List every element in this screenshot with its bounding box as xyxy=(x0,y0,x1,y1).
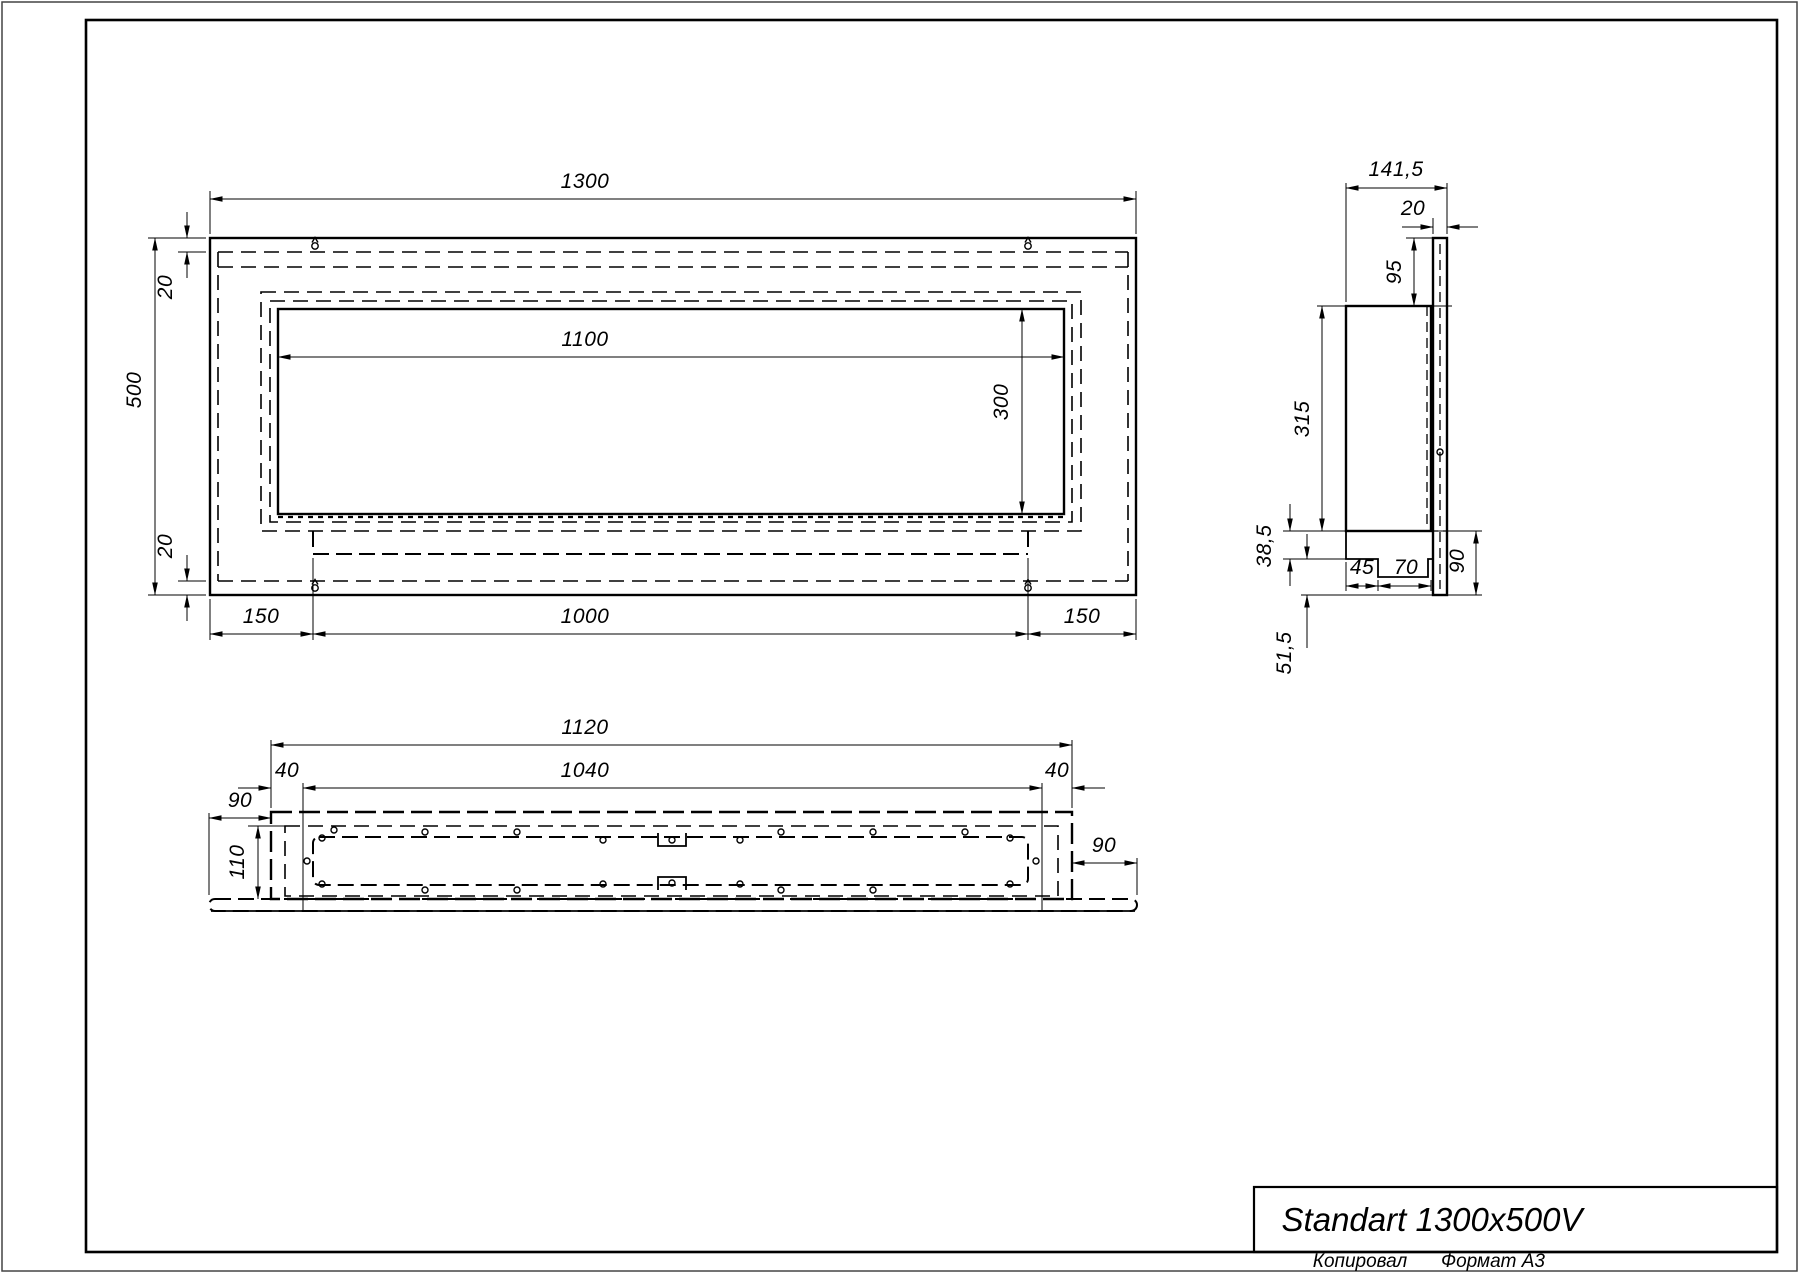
dim-front-opening-height: 300 xyxy=(990,384,1013,421)
dim-side-step-b: 70 xyxy=(1394,556,1418,579)
drawing-frame xyxy=(86,20,1777,1252)
dim-side-plate-lower: 90 xyxy=(1446,549,1469,573)
dim-front-flange-bottom: 20 xyxy=(154,534,177,559)
title-text: Standart 1300x500V xyxy=(1282,1201,1586,1238)
opening-hidden-rect xyxy=(261,292,1081,531)
dim-bottom-plate-left: 90 xyxy=(228,789,252,812)
dim-side-top-offset: 95 xyxy=(1383,260,1406,284)
title-block: Standart 1300x500V Копировал Формат А3 xyxy=(1254,1187,1777,1272)
side-body xyxy=(1346,306,1431,531)
side-view: 141,5 20 95 315 38,5 51,5 45 70 90 xyxy=(1253,158,1482,674)
bottom-view: 1120 40 1040 40 90 110 90 xyxy=(209,716,1137,911)
dim-front-total-width: 1300 xyxy=(561,170,610,193)
notch xyxy=(658,833,686,846)
dim-front-flange-top: 20 xyxy=(154,275,177,300)
dim-front-tray-width: 1000 xyxy=(561,605,610,628)
dim-side-step-height: 38,5 xyxy=(1253,525,1276,568)
page-border xyxy=(2,2,1797,1271)
wall-plate-strip xyxy=(209,899,1137,911)
footer-copied-label: Копировал xyxy=(1313,1251,1408,1272)
keyhole-mark xyxy=(312,238,1031,592)
dim-bottom-inset-left: 40 xyxy=(275,759,299,782)
dim-front-margin-right: 150 xyxy=(1064,605,1101,628)
dim-front-opening-width: 1100 xyxy=(561,328,608,351)
front-view: 1300 500 20 20 1100 300 150 1000 150 xyxy=(123,170,1136,640)
dim-side-step-a: 45 xyxy=(1350,556,1374,579)
notch xyxy=(658,877,686,890)
dim-front-total-height: 500 xyxy=(123,372,146,409)
dim-bottom-plate-right: 90 xyxy=(1092,834,1116,857)
dim-side-bottom-offset: 51,5 xyxy=(1273,632,1296,675)
dim-bottom-body-width: 1120 xyxy=(561,716,608,739)
dim-side-body-height: 315 xyxy=(1291,401,1314,438)
footer-format-label: Формат А3 xyxy=(1441,1251,1545,1272)
opening-rect xyxy=(278,309,1064,514)
drawing-page: 1300 500 20 20 1100 300 150 1000 150 xyxy=(0,0,1800,1273)
dim-bottom-inset-right: 40 xyxy=(1045,759,1069,782)
opening-hidden-rect xyxy=(270,301,1072,522)
dim-bottom-depth: 110 xyxy=(226,845,249,880)
dim-side-plate-thickness: 20 xyxy=(1400,197,1425,220)
dim-bottom-tray-width: 1040 xyxy=(561,759,610,782)
dim-front-margin-left: 150 xyxy=(243,605,280,628)
dim-side-total-depth: 141,5 xyxy=(1368,158,1423,181)
technical-drawing: 1300 500 20 20 1100 300 150 1000 150 xyxy=(0,0,1800,1273)
